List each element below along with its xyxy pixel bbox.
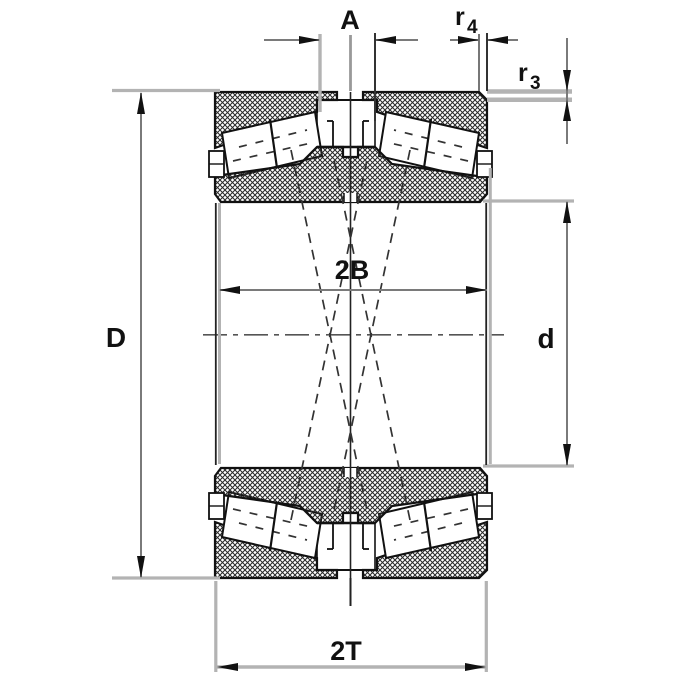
extension-lines <box>112 34 574 672</box>
label-D: D <box>106 322 126 353</box>
label-r4: r 4 <box>455 3 478 38</box>
label-2B: 2B <box>335 255 370 285</box>
label-r3: r 3 <box>518 59 541 94</box>
cage-ends-center <box>327 121 369 147</box>
label-r4-sub: 4 <box>467 17 478 38</box>
label-r3-base: r <box>518 59 528 87</box>
arrow-A-left <box>299 36 320 44</box>
arrow-2T-left <box>217 663 238 671</box>
arrow-2B-right <box>466 286 487 294</box>
arrow-2T-right <box>465 663 486 671</box>
bearing-cross-section: A r 4 r 3 D 2B d 2T <box>0 0 680 680</box>
arrow-D-top <box>137 92 145 114</box>
arrow-A-right <box>375 36 396 44</box>
arrow-2B-left <box>219 286 240 294</box>
bearing-dimension-drawing: A r 4 r 3 D 2B d 2T <box>0 0 680 680</box>
arrow-r4-right <box>487 36 508 44</box>
label-2T: 2T <box>330 636 362 666</box>
label-d: d <box>537 323 554 354</box>
label-r3-sub: 3 <box>530 73 541 94</box>
arrow-r3-bottom <box>563 100 571 121</box>
arrow-d-top <box>563 201 571 223</box>
label-r4-base: r <box>455 3 465 31</box>
dimension-arrowheads <box>137 36 571 671</box>
arrow-r3-top <box>563 70 571 91</box>
dimension-lines <box>141 38 567 667</box>
arrow-D-bottom <box>137 556 145 578</box>
arrow-d-bottom <box>563 444 571 466</box>
label-A: A <box>340 5 360 35</box>
